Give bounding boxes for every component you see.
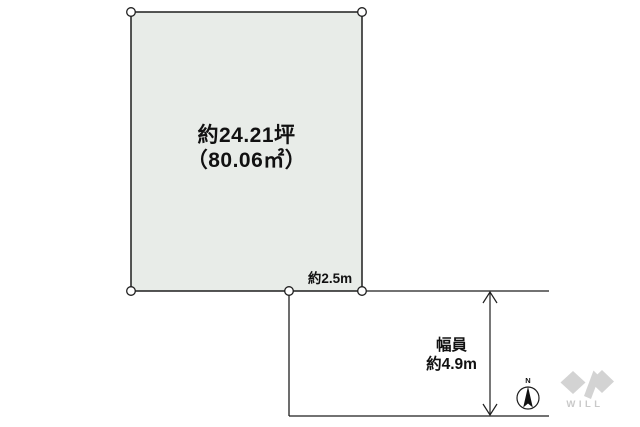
- plot-drawing: N WILL: [0, 0, 640, 427]
- road-width-label: 幅員 約4.9m: [420, 336, 483, 374]
- parcel-area-tsubo: 約24.21坪: [131, 123, 362, 148]
- logo-diamond-left: [561, 371, 586, 394]
- road-width-title: 幅員: [420, 336, 483, 355]
- corner-marker: [285, 287, 294, 296]
- compass-north-label: N: [525, 376, 530, 385]
- corner-marker: [358, 287, 367, 296]
- parcel-area-label: 約24.21坪 （80.06㎡）: [131, 123, 362, 173]
- land-plot-diagram: N WILL 約24.21坪 （80.06㎡） 約2.5m 幅員 約4.9m: [0, 0, 640, 427]
- will-logo-icon: WILL: [561, 370, 615, 410]
- road-width-arrow: [483, 292, 497, 415]
- corner-marker: [358, 8, 367, 17]
- corner-marker: [127, 8, 136, 17]
- frontage-dimension-label: 約2.5m: [303, 267, 357, 287]
- corner-marker: [127, 287, 136, 296]
- logo-wordmark: WILL: [566, 399, 603, 410]
- compass-icon: N: [517, 376, 539, 409]
- road-width-value: 約4.9m: [420, 355, 483, 374]
- parcel-area-sqm: （80.06㎡）: [131, 148, 362, 173]
